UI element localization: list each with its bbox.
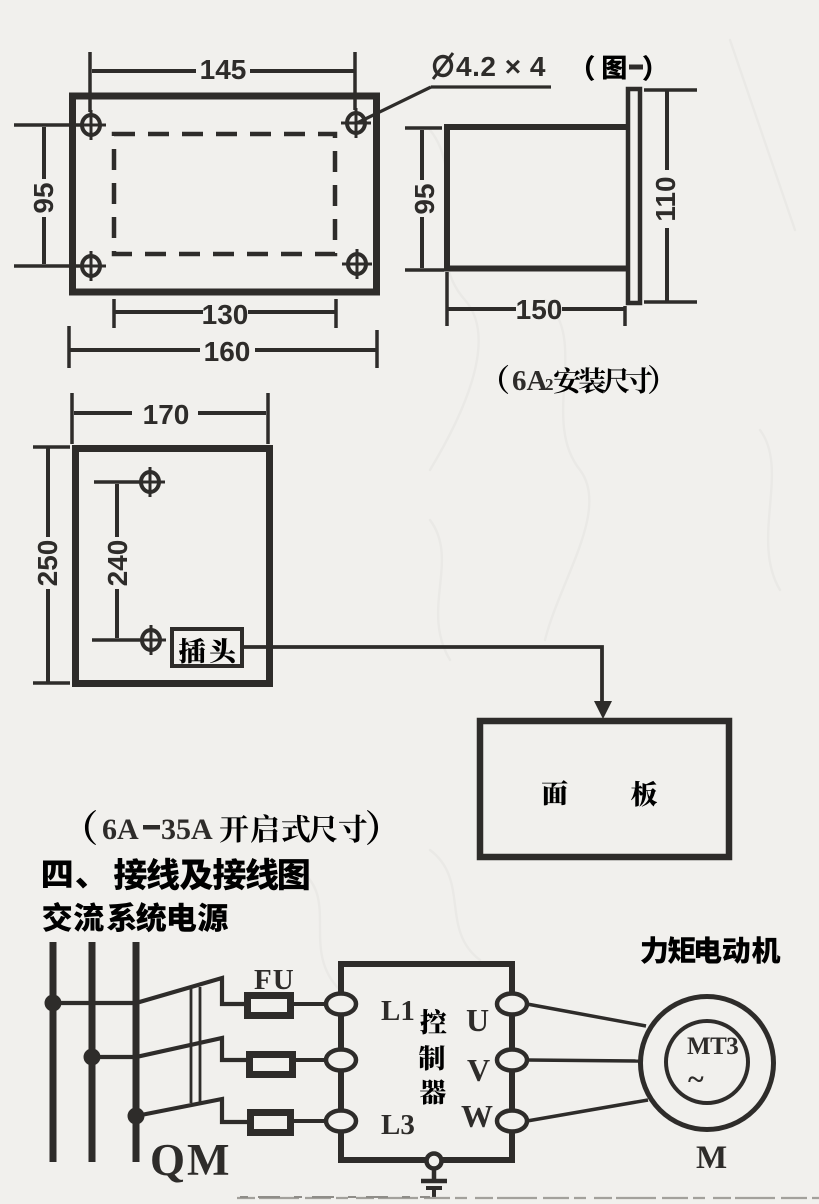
svg-text:L1: L1: [381, 995, 415, 1027]
svg-text:95: 95: [28, 182, 59, 213]
svg-text:M: M: [696, 1140, 727, 1176]
svg-text:2: 2: [545, 375, 554, 394]
svg-text:W: W: [461, 1098, 493, 1134]
svg-text:170: 170: [143, 399, 190, 430]
svg-text:L3: L3: [381, 1109, 415, 1141]
svg-text:95: 95: [409, 183, 440, 214]
svg-text:MT3: MT3: [687, 1033, 738, 1060]
svg-text:~: ~: [688, 1063, 704, 1096]
svg-text:35A: 35A: [161, 813, 213, 846]
svg-text:QM: QM: [150, 1135, 231, 1185]
svg-text:6A: 6A: [512, 365, 548, 397]
svg-text:250: 250: [32, 540, 63, 587]
svg-text:110: 110: [650, 176, 681, 221]
svg-text:4.2 × 4: 4.2 × 4: [456, 51, 546, 82]
svg-text:V: V: [467, 1052, 490, 1088]
svg-text:U: U: [466, 1002, 489, 1038]
svg-text:160: 160: [204, 336, 251, 367]
svg-text:6A: 6A: [102, 813, 139, 846]
svg-text:130: 130: [202, 299, 249, 330]
svg-text:240: 240: [102, 540, 133, 587]
svg-text:150: 150: [516, 294, 563, 325]
svg-text:145: 145: [200, 54, 247, 85]
svg-text:FU: FU: [254, 964, 295, 996]
